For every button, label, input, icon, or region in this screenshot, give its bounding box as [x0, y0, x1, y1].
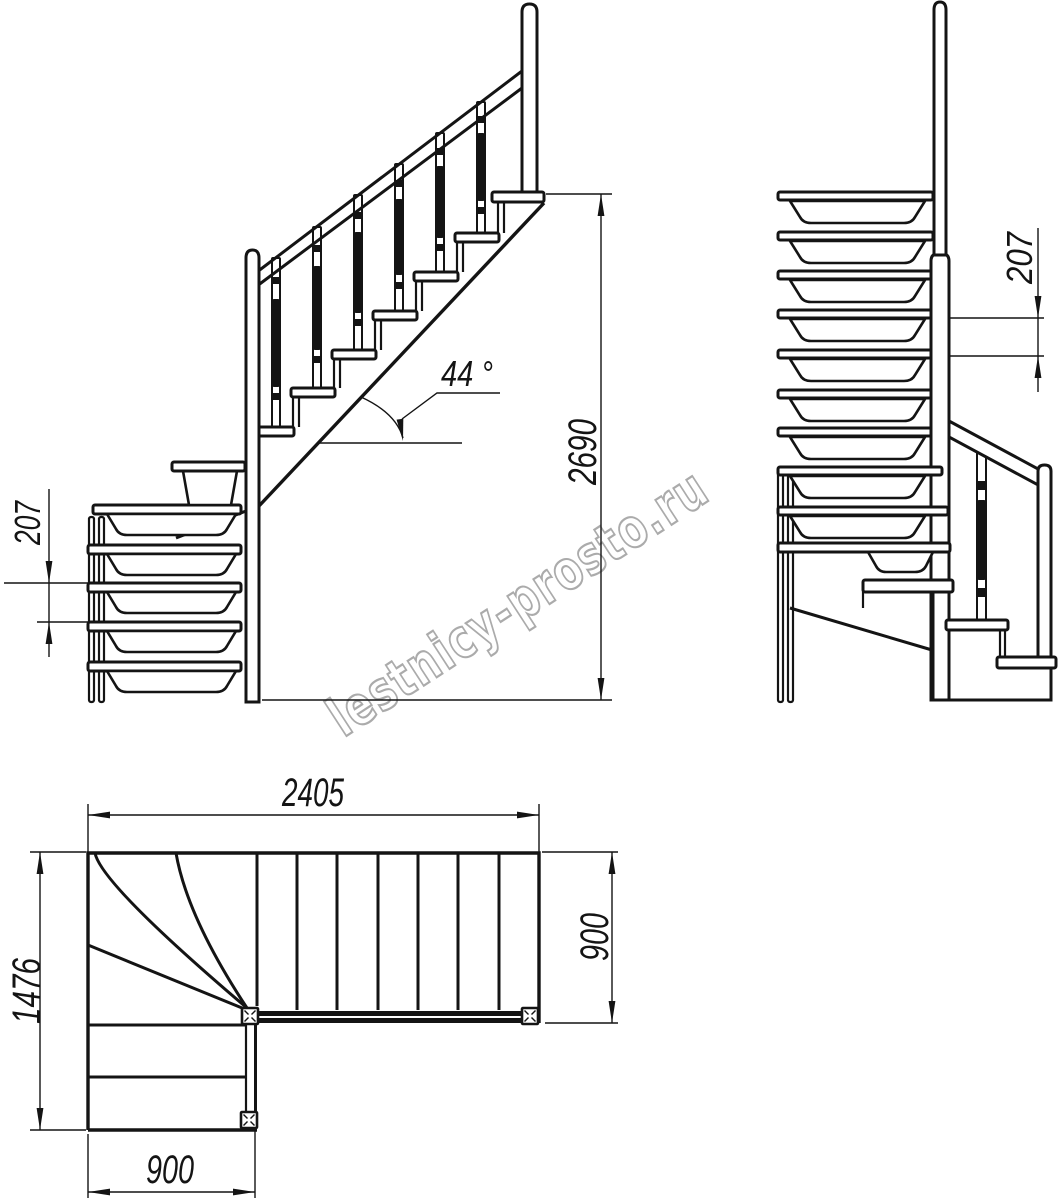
winder-line [88, 945, 247, 1010]
step-edge [778, 192, 933, 200]
tread [332, 350, 376, 359]
baluster-turned-section [976, 500, 987, 580]
tread [414, 272, 458, 281]
dim-side-rise: 207 [4, 489, 88, 657]
dim-side-angle: 44 ° [318, 353, 500, 443]
dim-plan-lower-flight-width: 900 [88, 1131, 255, 1198]
handrail [949, 421, 1040, 486]
winder-tread [88, 583, 241, 592]
dim-plan-flight-width: 900 [542, 852, 618, 1023]
tread [291, 388, 335, 397]
step-edge [778, 543, 950, 552]
baluster-collar [272, 393, 280, 400]
step-tray [790, 241, 925, 263]
front-view [778, 2, 1056, 702]
top-newel-post [522, 4, 537, 192]
baluster-turned-section [271, 299, 281, 387]
plan-lower-flight-width-label: 900 [146, 1148, 194, 1192]
baluster-turned-section [353, 232, 363, 313]
upper-newel-post [934, 2, 946, 255]
tread [373, 311, 417, 320]
winder-tread [88, 662, 241, 671]
baluster-collar [436, 244, 444, 251]
rail-band [258, 1011, 523, 1016]
baluster-collar [313, 245, 321, 252]
blueprint-page: lestnicy-prosto.ru 207 2690 44 ° 20 [0, 0, 1060, 1204]
plan-view [88, 853, 539, 1130]
baluster-collar [313, 356, 321, 363]
baluster-collar [395, 282, 403, 289]
winder-tray [107, 671, 236, 692]
plan-total-run-label: 2405 [281, 771, 344, 815]
tread [997, 657, 1056, 668]
winder-tread [88, 545, 241, 554]
step-edge [778, 271, 933, 279]
winder-tray [107, 592, 236, 613]
step-tray [790, 201, 925, 223]
front-rise-label: 207 [999, 230, 1040, 285]
winder-tread [93, 505, 241, 514]
newel-post-square [242, 1008, 258, 1024]
tread [455, 233, 499, 242]
right-newel-post [1038, 465, 1051, 658]
baluster-collar [272, 277, 280, 284]
baluster-turned-section [312, 266, 322, 350]
step-tray [790, 516, 925, 538]
step-edge [778, 507, 948, 515]
winder-tray [107, 631, 236, 652]
newel-post-square [241, 1112, 257, 1128]
winder-line [95, 853, 247, 1008]
staircase-blueprint: lestnicy-prosto.ru 207 2690 44 ° 20 [0, 0, 1060, 1204]
step-edge [778, 310, 933, 318]
dim-plan-total-depth: 1476 [5, 852, 86, 1130]
step-tray [790, 280, 925, 302]
dim-front-rise: 207 [950, 228, 1044, 392]
tread [946, 620, 1008, 630]
step-tray [790, 437, 925, 459]
side-rise-label: 207 [7, 500, 48, 546]
leg [788, 470, 793, 702]
winder-tray [107, 554, 236, 575]
stringer [790, 608, 932, 650]
middle-newel-post [246, 250, 259, 702]
plan-flight-width-label: 900 [573, 913, 617, 961]
step-tray [790, 359, 925, 381]
plan-total-depth-label: 1476 [5, 957, 49, 1024]
step-edge [778, 350, 933, 358]
dim-plan-total-run: 2405 [88, 771, 539, 852]
baluster-collar [354, 319, 362, 326]
step-edge [778, 390, 933, 398]
step-tray [790, 319, 925, 341]
step-tray [790, 399, 925, 421]
winder-tread [88, 622, 241, 631]
baluster-collar [977, 481, 986, 490]
pedestal-tread [172, 462, 245, 471]
plan-outline [88, 853, 539, 1130]
baluster-turned-section [476, 133, 486, 201]
bottom-steps-outline [933, 592, 1051, 700]
baluster-collar [477, 207, 485, 214]
leg [778, 470, 783, 702]
winder-tray [107, 514, 236, 535]
newel-post-square [522, 1008, 538, 1024]
step-edge [778, 232, 933, 240]
baluster-turned-section [394, 199, 404, 275]
side-angle-label: 44 ° [441, 353, 493, 394]
landing-tread [492, 192, 544, 202]
pedestal-tread [863, 580, 953, 592]
side-total-height-label: 2690 [561, 419, 605, 486]
step-edge [778, 428, 933, 436]
baluster-collar [977, 588, 986, 597]
baluster-turned-section [435, 166, 445, 238]
step-tray [790, 476, 925, 498]
watermark-text: lestnicy-prosto.ru [316, 456, 719, 748]
rail-band [258, 1018, 523, 1023]
step-tray [868, 552, 933, 572]
step-edge [778, 467, 942, 475]
pedestal-step [183, 471, 237, 505]
